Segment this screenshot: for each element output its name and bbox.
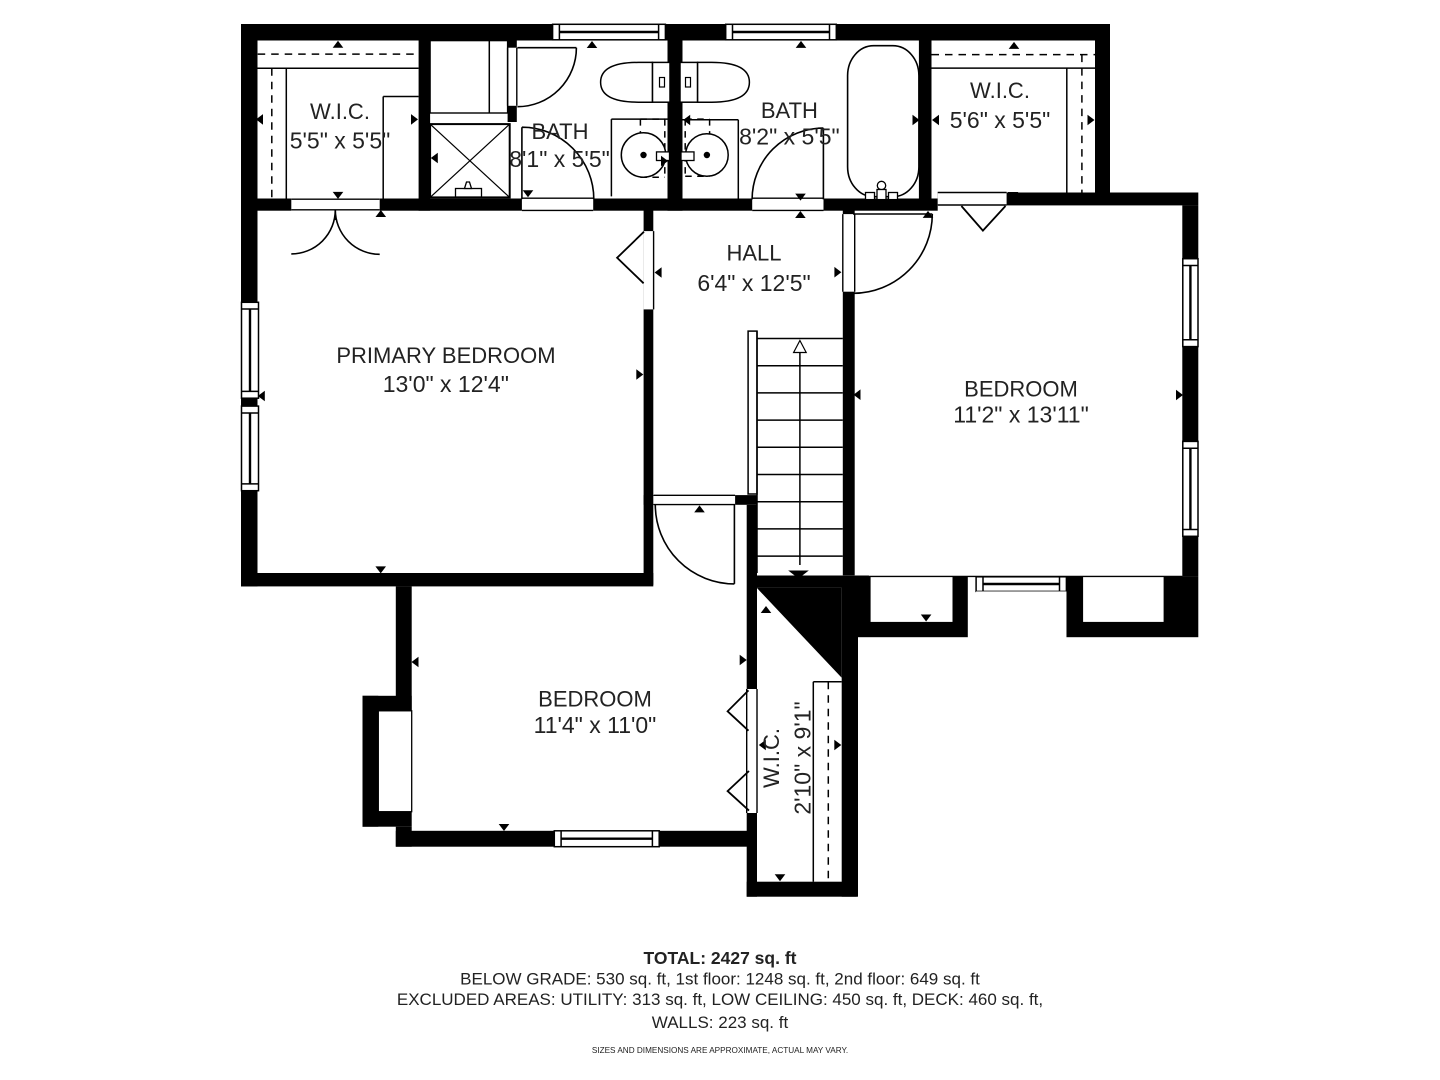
svg-text:PRIMARY BEDROOM: PRIMARY BEDROOM (336, 343, 555, 368)
svg-text:8'1" x 5'5": 8'1" x 5'5" (509, 146, 610, 172)
svg-text:11'2" x 13'11": 11'2" x 13'11" (953, 402, 1089, 428)
svg-text:BEDROOM: BEDROOM (538, 687, 652, 712)
svg-text:WALLS: 223 sq. ft: WALLS: 223 sq. ft (652, 1013, 789, 1032)
svg-text:EXCLUDED AREAS: UTILITY: 313 s: EXCLUDED AREAS: UTILITY: 313 sq. ft, LOW… (397, 990, 1043, 1009)
svg-text:11'4" x 11'0": 11'4" x 11'0" (534, 712, 657, 738)
svg-text:HALL: HALL (726, 241, 781, 266)
svg-text:W.I.C.: W.I.C. (970, 78, 1030, 103)
svg-text:8'2" x 5'5": 8'2" x 5'5" (739, 124, 840, 150)
svg-text:5'6" x 5'5": 5'6" x 5'5" (950, 107, 1051, 133)
svg-text:SIZES AND DIMENSIONS ARE APPRO: SIZES AND DIMENSIONS ARE APPROXIMATE, AC… (592, 1046, 848, 1055)
svg-text:TOTAL: 2427 sq. ft: TOTAL: 2427 sq. ft (644, 948, 797, 968)
svg-text:6'4" x 12'5": 6'4" x 12'5" (697, 270, 810, 296)
svg-text:5'5" x 5'5": 5'5" x 5'5" (290, 128, 391, 154)
svg-text:W.I.C.: W.I.C. (310, 99, 370, 124)
svg-text:BEDROOM: BEDROOM (964, 377, 1078, 402)
svg-text:BATH: BATH (761, 98, 818, 123)
svg-text:BELOW GRADE: 530 sq. ft, 1st f: BELOW GRADE: 530 sq. ft, 1st floor: 1248… (460, 969, 980, 988)
svg-text:13'0" x 12'4": 13'0" x 12'4" (383, 371, 509, 397)
svg-text:2'10" x 9'1": 2'10" x 9'1" (790, 701, 816, 814)
svg-text:W.I.C.: W.I.C. (759, 728, 784, 788)
svg-text:BATH: BATH (531, 119, 588, 144)
